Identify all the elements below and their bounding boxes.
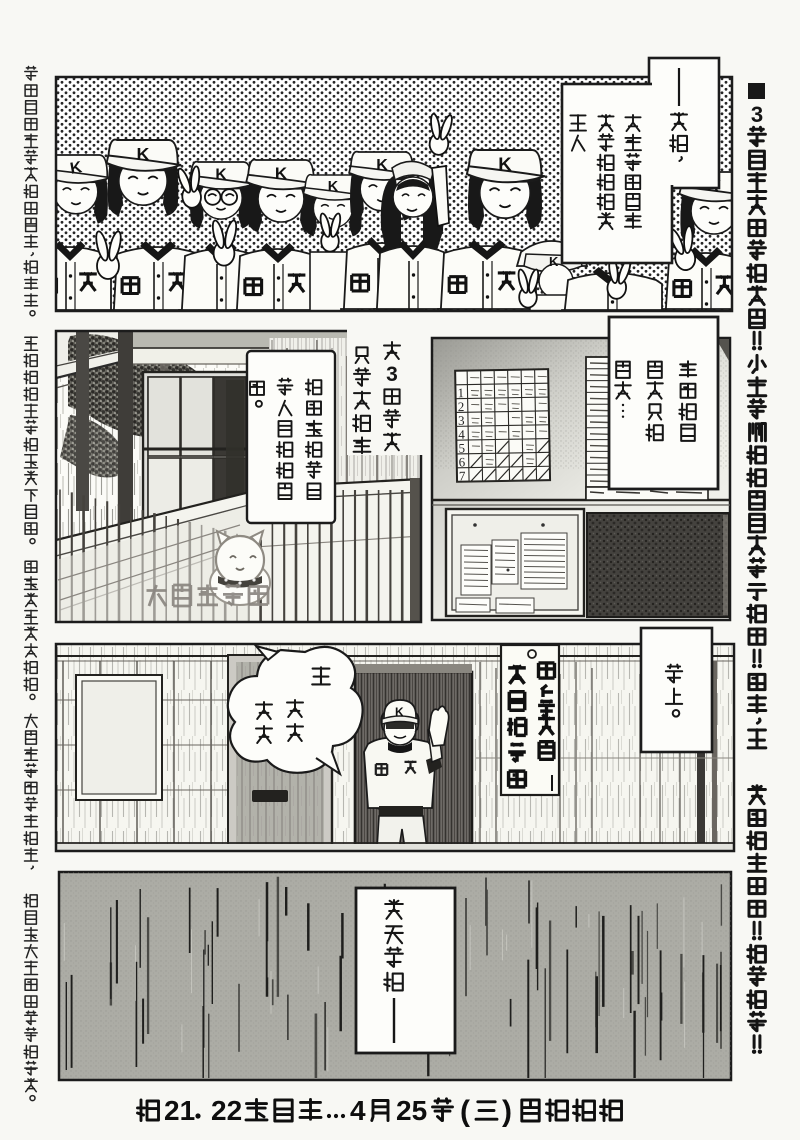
svg-text:K: K (376, 156, 388, 174)
svg-text:5: 5 (458, 441, 465, 456)
svg-text:K: K (328, 179, 339, 195)
svg-text:K: K (137, 144, 150, 164)
svg-text:): ) (502, 1095, 512, 1128)
svg-text:7: 7 (459, 468, 466, 483)
svg-text:K: K (395, 705, 404, 719)
svg-text:3: 3 (458, 413, 465, 428)
svg-text:3: 3 (386, 363, 398, 386)
svg-text:3: 3 (751, 102, 763, 127)
svg-text:K: K (549, 254, 559, 269)
svg-text:K: K (275, 164, 288, 183)
svg-text:K: K (215, 166, 227, 183)
svg-text:25: 25 (396, 1095, 427, 1126)
svg-text:K: K (498, 154, 512, 175)
svg-text:22: 22 (211, 1095, 242, 1126)
svg-text:1: 1 (457, 385, 464, 400)
svg-text:(: ( (460, 1095, 470, 1128)
svg-text:4: 4 (350, 1095, 366, 1126)
svg-text:21: 21 (164, 1095, 195, 1126)
